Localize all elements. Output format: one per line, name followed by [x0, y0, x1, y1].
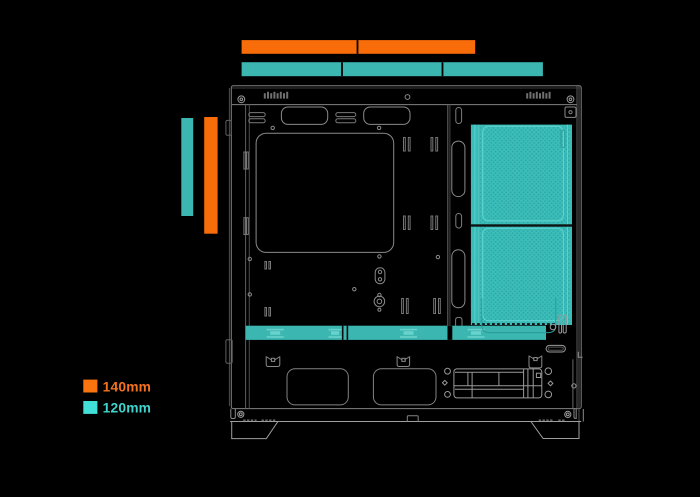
svg-text:140mm: 140mm: [103, 379, 152, 394]
svg-text:120mm: 120mm: [103, 401, 152, 416]
